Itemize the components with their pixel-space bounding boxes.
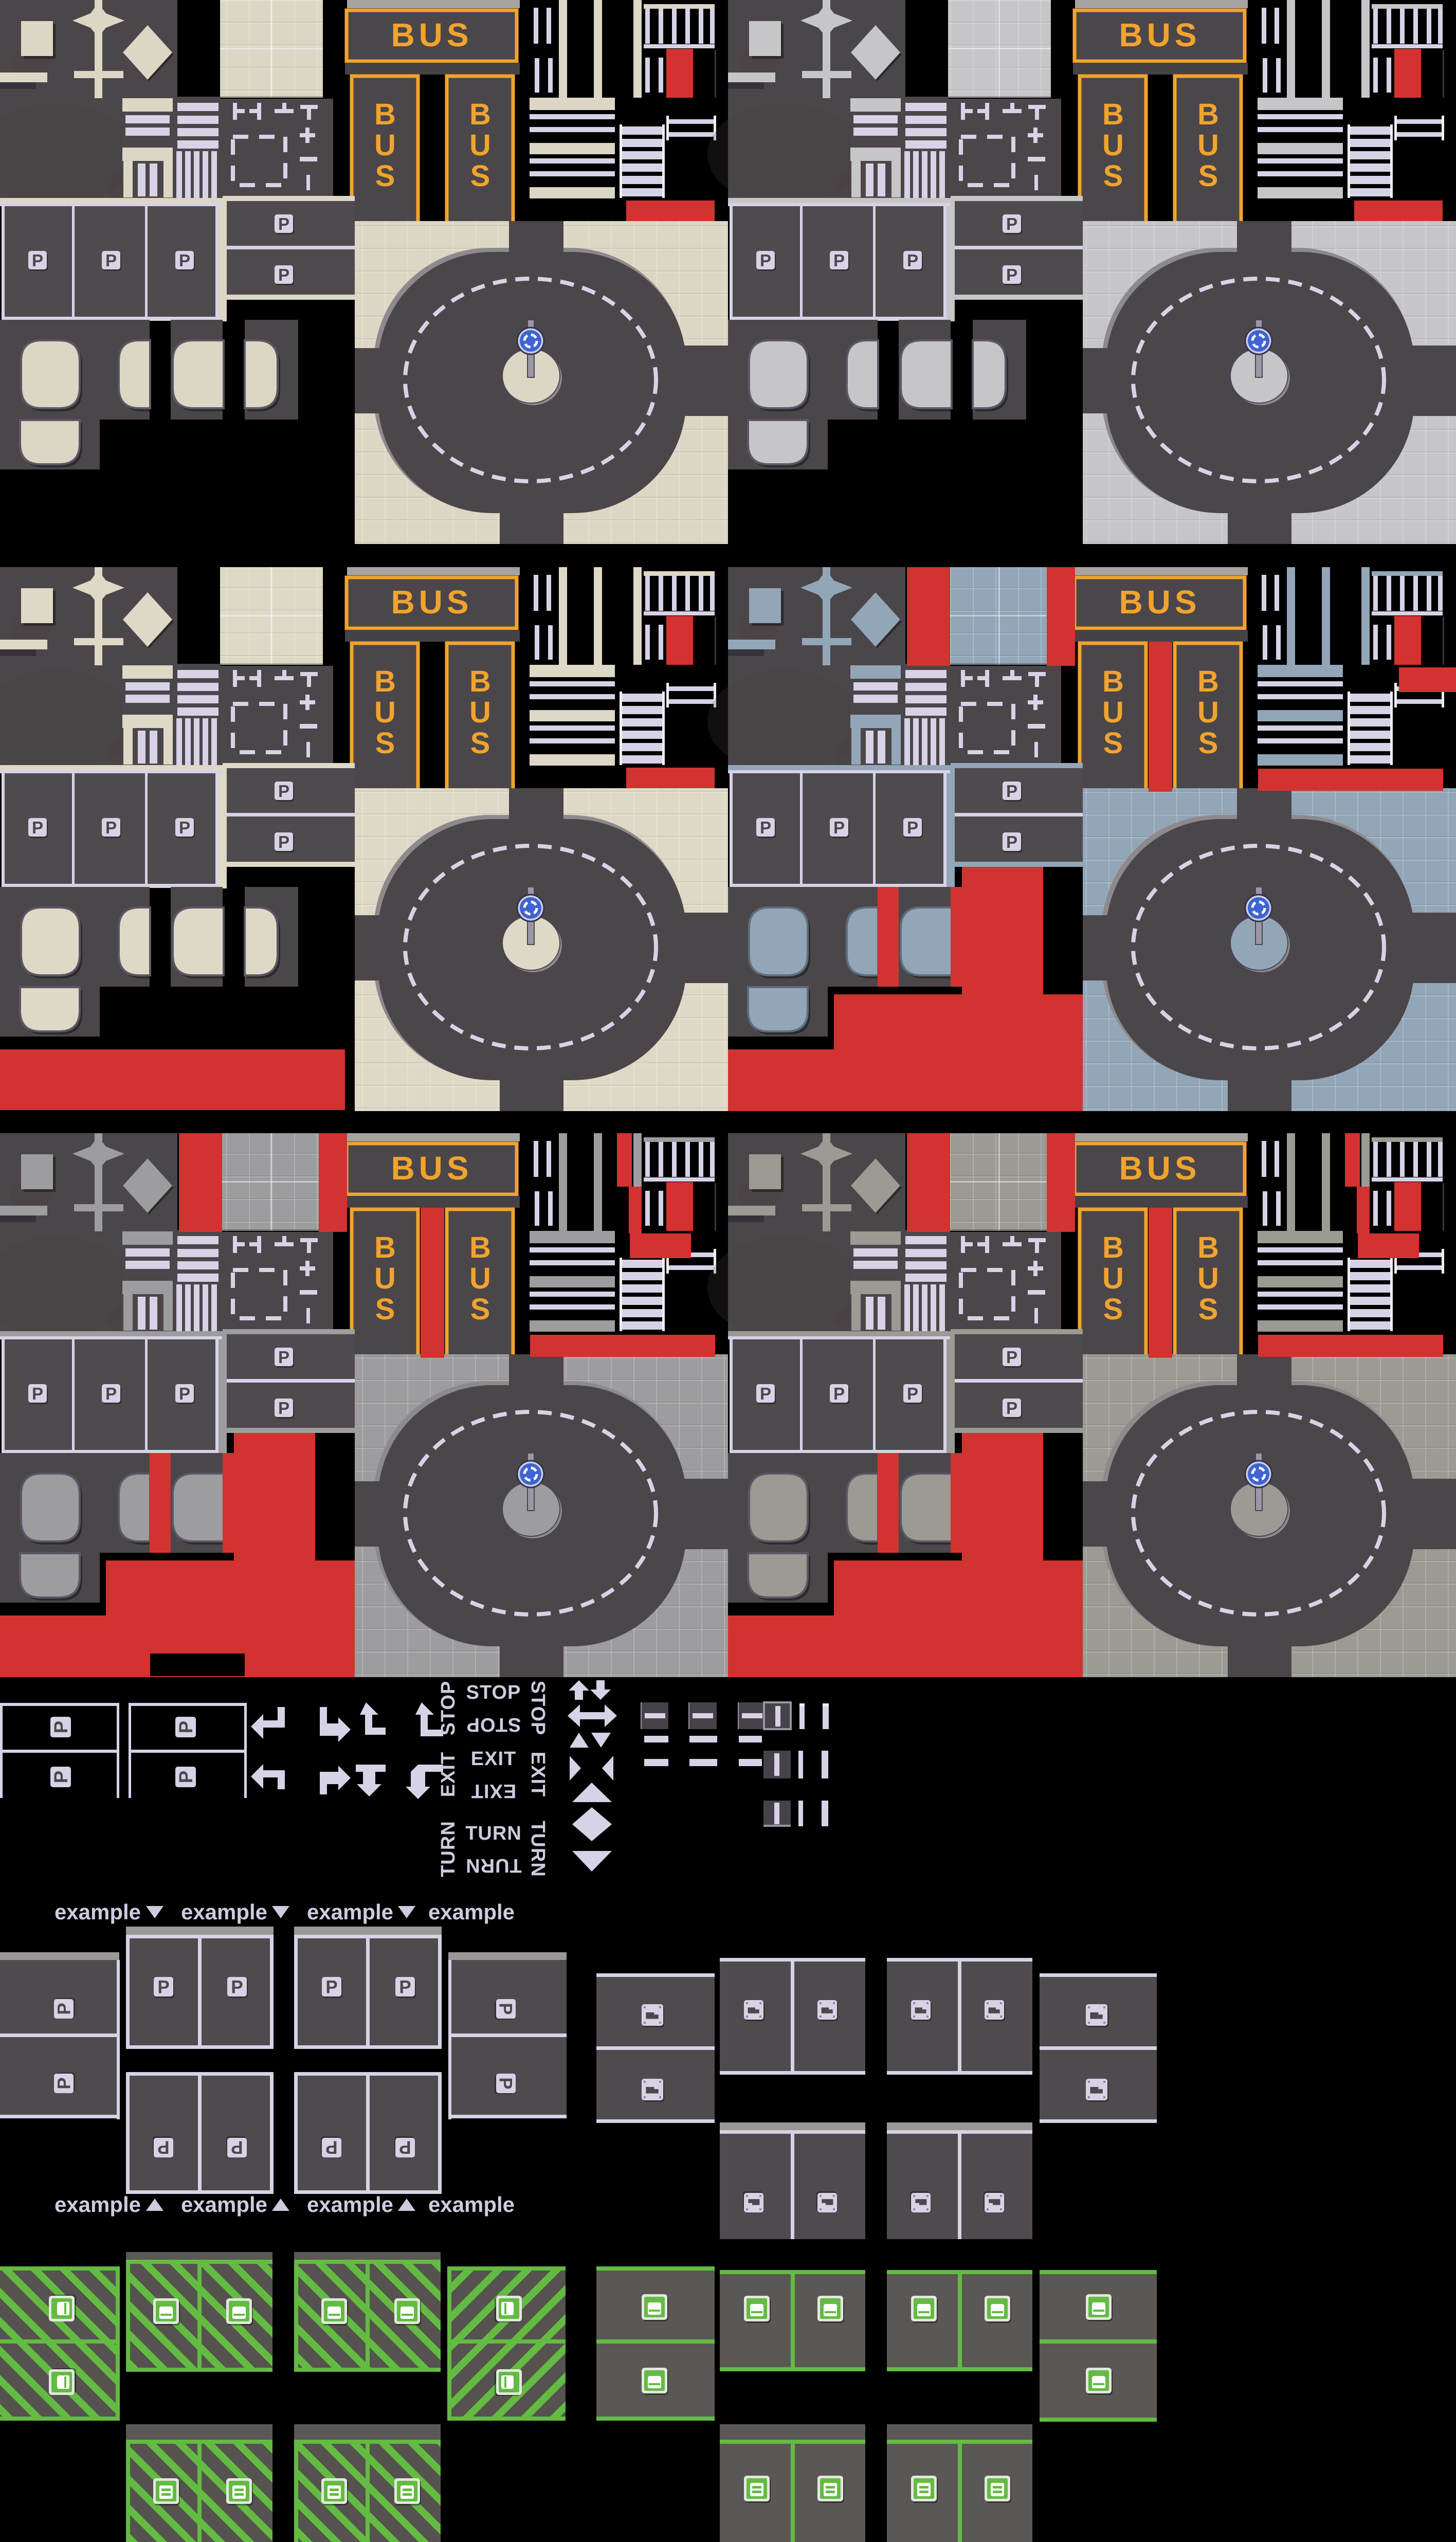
svg-text:P: P <box>105 819 117 838</box>
svg-text:P: P <box>179 251 190 270</box>
svg-text:S: S <box>1103 727 1123 760</box>
svg-text:P: P <box>833 251 845 270</box>
svg-text:P: P <box>760 1385 771 1404</box>
svg-text:P: P <box>1006 782 1017 801</box>
svg-text:P: P <box>157 2137 169 2157</box>
svg-text:P: P <box>833 819 845 838</box>
svg-text:BUS: BUS <box>1119 1150 1200 1187</box>
svg-text:P: P <box>278 833 289 852</box>
svg-text:example: example <box>54 2192 141 2217</box>
svg-text:B: B <box>374 1231 396 1264</box>
svg-text:P: P <box>50 1721 71 1734</box>
svg-text:P: P <box>1006 215 1017 234</box>
svg-text:P: P <box>833 1385 845 1404</box>
svg-text:BUS: BUS <box>391 16 472 53</box>
svg-text:U: U <box>374 1262 396 1295</box>
svg-text:example: example <box>181 1900 267 1924</box>
svg-text:S: S <box>470 1293 490 1326</box>
svg-text:P: P <box>278 782 289 801</box>
svg-text:B: B <box>469 98 491 131</box>
svg-text:BUS: BUS <box>1119 584 1200 621</box>
svg-text:P: P <box>157 1977 169 1998</box>
svg-text:U: U <box>1197 696 1219 729</box>
svg-text:TURN: TURN <box>465 1823 522 1844</box>
svg-text:STOP: STOP <box>466 1682 521 1703</box>
svg-text:STOP: STOP <box>466 1714 521 1735</box>
svg-text:P: P <box>278 266 289 285</box>
svg-text:example: example <box>428 1900 515 1924</box>
svg-text:TURN: TURN <box>438 1821 459 1877</box>
svg-text:U: U <box>1102 696 1124 729</box>
svg-text:B: B <box>374 665 396 698</box>
svg-text:example: example <box>428 2192 515 2217</box>
svg-text:U: U <box>469 129 491 162</box>
svg-text:P: P <box>907 251 918 270</box>
svg-text:P: P <box>1006 266 1017 285</box>
svg-text:BUS: BUS <box>391 584 472 621</box>
svg-text:B: B <box>374 98 396 131</box>
svg-text:EXIT: EXIT <box>471 1748 516 1770</box>
svg-text:P: P <box>1006 1399 1017 1418</box>
svg-text:example: example <box>54 1900 141 1924</box>
svg-text:TURN: TURN <box>465 1855 522 1876</box>
svg-text:U: U <box>1197 1262 1219 1295</box>
svg-text:P: P <box>495 2003 515 2014</box>
svg-text:B: B <box>1197 665 1219 698</box>
svg-text:P: P <box>495 2077 515 2089</box>
svg-text:P: P <box>399 1977 411 1998</box>
svg-text:P: P <box>105 1385 117 1404</box>
svg-text:P: P <box>278 1348 289 1367</box>
svg-text:P: P <box>231 2137 243 2157</box>
svg-text:P: P <box>907 819 918 838</box>
svg-text:B: B <box>1197 98 1219 131</box>
svg-text:P: P <box>54 2077 75 2089</box>
svg-text:U: U <box>1102 129 1124 162</box>
svg-text:P: P <box>32 251 43 270</box>
svg-text:P: P <box>278 1399 289 1418</box>
svg-text:STOP: STOP <box>438 1681 459 1736</box>
svg-text:example: example <box>181 2192 267 2217</box>
svg-text:P: P <box>175 1771 196 1784</box>
svg-text:P: P <box>325 1977 337 1998</box>
svg-text:EXIT: EXIT <box>471 1780 516 1802</box>
svg-text:BUS: BUS <box>391 1150 472 1187</box>
svg-text:example: example <box>307 1900 393 1924</box>
svg-text:S: S <box>1198 159 1218 193</box>
svg-text:S: S <box>1103 159 1123 193</box>
svg-text:P: P <box>179 1385 190 1404</box>
svg-text:U: U <box>374 129 396 162</box>
svg-text:U: U <box>374 696 396 729</box>
svg-text:TURN: TURN <box>527 1821 549 1877</box>
svg-text:example: example <box>307 2192 393 2217</box>
svg-text:P: P <box>231 1977 243 1998</box>
svg-text:P: P <box>399 2137 411 2157</box>
svg-text:U: U <box>469 696 491 729</box>
svg-text:P: P <box>1006 833 1017 852</box>
svg-text:P: P <box>760 819 771 838</box>
svg-text:P: P <box>325 2137 337 2157</box>
svg-text:S: S <box>1198 1293 1218 1326</box>
svg-text:B: B <box>1102 1231 1124 1264</box>
svg-text:STOP: STOP <box>527 1681 549 1736</box>
svg-text:B: B <box>469 665 491 698</box>
svg-text:S: S <box>375 727 395 760</box>
svg-text:P: P <box>32 1385 43 1404</box>
svg-text:P: P <box>50 1771 71 1784</box>
svg-text:P: P <box>760 251 771 270</box>
svg-text:S: S <box>470 727 490 760</box>
svg-text:P: P <box>105 251 117 270</box>
svg-text:P: P <box>175 1721 196 1734</box>
svg-text:U: U <box>1197 129 1219 162</box>
svg-text:P: P <box>32 819 43 838</box>
svg-text:B: B <box>1102 98 1124 131</box>
svg-text:U: U <box>1102 1262 1124 1295</box>
svg-text:S: S <box>375 159 395 193</box>
svg-text:S: S <box>470 159 490 193</box>
svg-text:P: P <box>278 215 289 234</box>
svg-text:P: P <box>907 1385 918 1404</box>
svg-text:S: S <box>1103 1293 1123 1326</box>
svg-text:BUS: BUS <box>1119 16 1200 53</box>
svg-text:B: B <box>1102 665 1124 698</box>
svg-text:EXIT: EXIT <box>438 1752 459 1797</box>
svg-text:B: B <box>1197 1231 1219 1264</box>
svg-text:S: S <box>1198 727 1218 760</box>
svg-text:B: B <box>469 1231 491 1264</box>
svg-text:P: P <box>179 819 190 838</box>
svg-text:P: P <box>54 2003 75 2014</box>
svg-text:S: S <box>375 1293 395 1326</box>
svg-text:U: U <box>469 1262 491 1295</box>
svg-text:EXIT: EXIT <box>527 1752 549 1797</box>
svg-text:P: P <box>1006 1348 1017 1367</box>
